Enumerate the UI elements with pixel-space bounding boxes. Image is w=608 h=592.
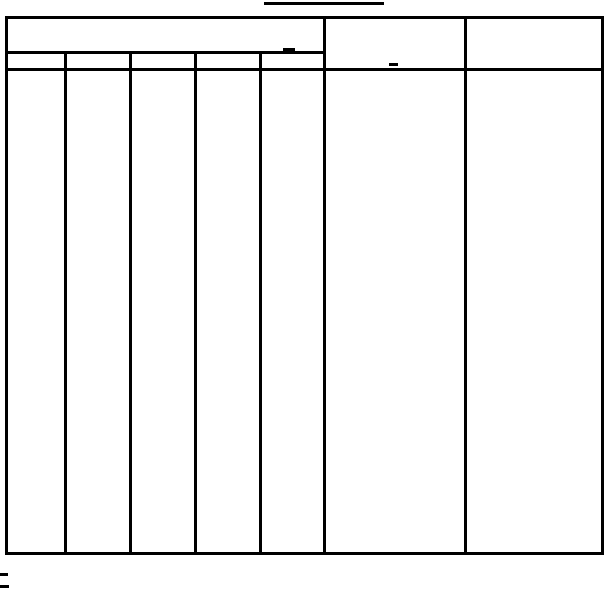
stray-dash-header bbox=[283, 48, 295, 51]
scanned-document-page bbox=[0, 0, 608, 592]
subheader-cell-4 bbox=[194, 54, 259, 71]
body-cell-4 bbox=[194, 71, 259, 552]
stray-dash-middle bbox=[389, 63, 398, 66]
subheader-cell-5 bbox=[259, 54, 323, 71]
body-cell-1 bbox=[8, 71, 64, 552]
header-left-span-cell bbox=[8, 19, 323, 54]
body-cell-6 bbox=[323, 71, 464, 552]
subheader-cell-3 bbox=[129, 54, 194, 71]
blank-table bbox=[5, 16, 604, 555]
title-underline-rule bbox=[264, 2, 384, 5]
footnote-dash-2 bbox=[0, 585, 9, 588]
body-cell-2 bbox=[64, 71, 129, 552]
body-cell-3 bbox=[129, 71, 194, 552]
body-cell-7 bbox=[464, 71, 601, 552]
subheader-cell-1 bbox=[8, 54, 64, 71]
header-right-cell bbox=[464, 19, 601, 71]
footnote-dash-1 bbox=[0, 573, 8, 576]
body-cell-5 bbox=[259, 71, 323, 552]
subheader-cell-2 bbox=[64, 54, 129, 71]
